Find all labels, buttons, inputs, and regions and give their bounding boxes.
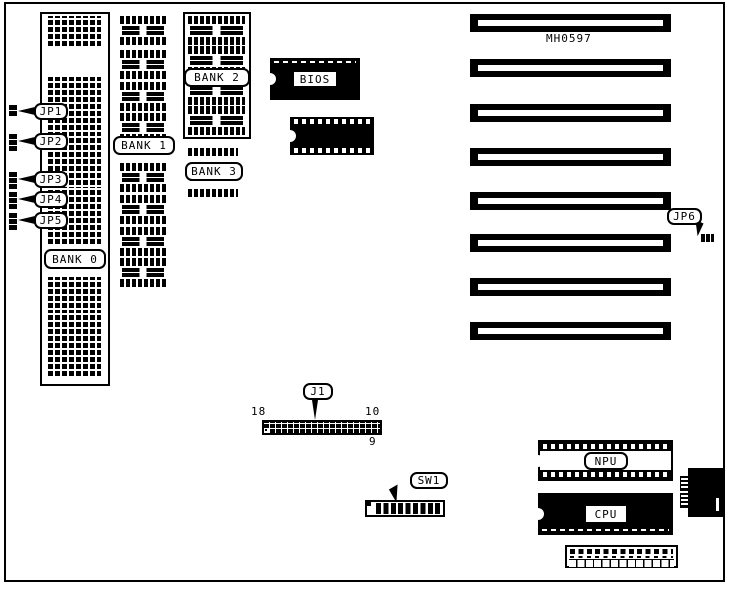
j1-pin18-label: 18 [251,405,266,418]
dram-chip [48,310,101,341]
bios-chip-pins [274,61,356,63]
npu-pins-bottom [540,470,671,479]
dip-socket [188,106,245,135]
jp3-callout-pointer [18,175,35,183]
jp3-jumper-pins [9,171,17,189]
rom-chip [290,117,374,155]
dip-socket [120,227,166,256]
cpu-label: CPU [586,506,626,522]
jp6-jumper-pins [701,234,714,242]
power-connector-contacts [570,556,673,558]
bios-chip: BIOS [270,58,360,100]
jp3-label: JP3 [34,171,68,188]
bank2-label: BANK 2 [184,68,250,87]
motherboard-diagram: BANK 0 JP1 JP2 JP3 JP4 JP5 BANK 1 BANK 2… [0,0,731,591]
j1-pin9-label: 9 [369,435,377,448]
j1-connector-pins [264,422,380,433]
rom-chip-notch [290,130,296,142]
jp2-label: JP2 [34,133,68,150]
cpu-pins-bottom [542,529,669,531]
jp5-jumper-pins [9,212,17,230]
power-connector-pins [570,549,673,554]
npu-label: NPU [584,452,628,470]
expansion-slot [470,192,671,210]
keyboard-connector-slit [716,498,719,511]
jp1-callout-pointer [18,107,35,115]
expansion-slot [470,59,671,77]
dip-socket [188,16,245,45]
board-model-label: MH0597 [546,32,592,45]
j1-connector [262,420,382,435]
dip-socket [120,195,166,224]
dip-socket [120,258,166,287]
dram-chip [48,16,101,46]
j1-pin10-label: 10 [365,405,380,418]
bank3-label: BANK 3 [185,162,243,181]
jp6-label: JP6 [667,208,702,225]
jp2-callout-pointer [18,137,35,145]
bios-label: BIOS [294,72,336,86]
cpu-notch [538,508,544,520]
cpu-chip: CPU [538,493,673,535]
bank1-label: BANK 1 [113,136,175,155]
jp4-callout-pointer [18,195,35,203]
jp1-jumper-pins [9,104,17,116]
expansion-slot [470,148,671,166]
keyboard-connector-pin [680,493,689,508]
sw1-dip-switch [365,500,445,517]
expansion-slot [470,322,671,340]
jp5-callout-pointer [18,216,35,224]
keyboard-connector-pin [680,476,689,491]
bank0-label: BANK 0 [44,249,106,269]
expansion-slot [470,104,671,122]
npu-pins-top [540,442,671,451]
expansion-slot [470,14,671,32]
power-connector-sockets [569,559,674,568]
jp4-label: JP4 [34,191,68,208]
rom-chip-pins-bottom [294,148,370,153]
jp1-label: JP1 [34,103,68,120]
sw1-corner-marker [367,502,371,506]
power-connector [565,545,678,568]
dip-socket [120,16,166,45]
dip-socket [120,82,166,111]
dram-chip [48,343,101,376]
sw1-label: SW1 [410,472,448,489]
rom-chip-pins-top [294,119,370,124]
npu-socket: NPU [538,440,673,481]
dip-socket [120,163,166,192]
keyboard-connector [688,468,725,517]
j1-pin1-marker [264,428,269,433]
sw1-switches [376,503,442,514]
dram-chip [48,277,101,308]
expansion-slot [470,234,671,252]
jp4-jumper-pins [9,191,17,209]
dip-socket [120,50,166,79]
jp2-jumper-pins [9,133,17,151]
j1-label: J1 [303,383,333,400]
expansion-slot [470,278,671,296]
j1-callout-pointer [312,400,318,420]
jp5-label: JP5 [34,212,68,229]
bios-chip-notch [270,73,276,85]
